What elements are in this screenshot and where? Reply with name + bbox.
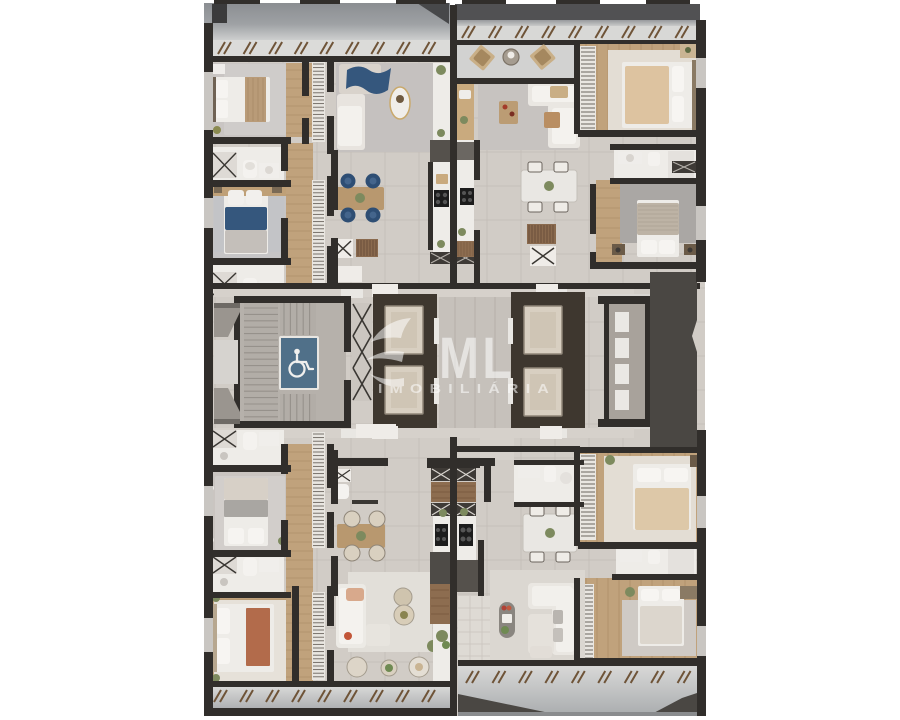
svg-text:IMOBILIÁRIA: IMOBILIÁRIA: [378, 381, 556, 396]
